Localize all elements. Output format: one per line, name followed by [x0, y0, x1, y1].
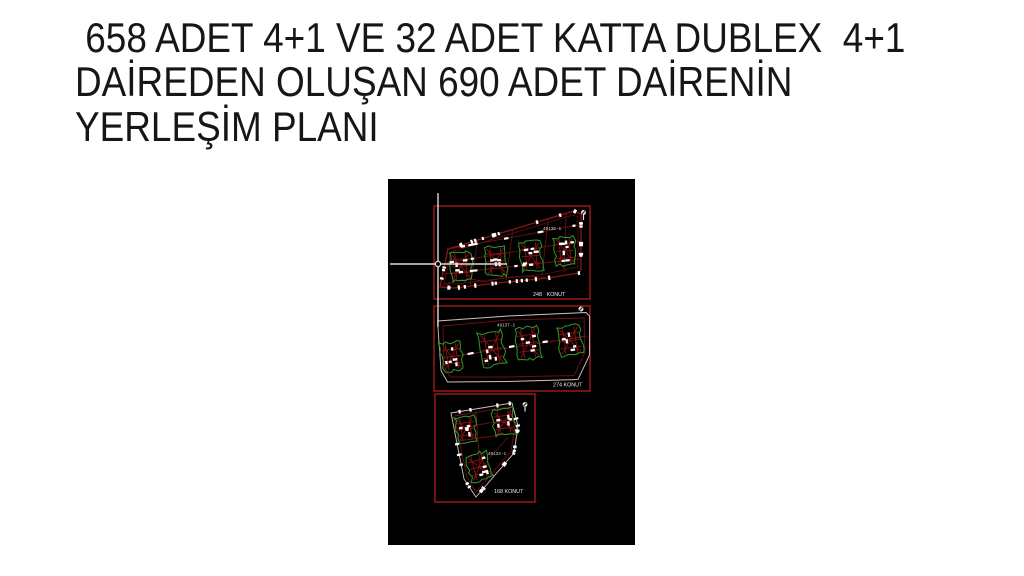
svg-text:274 KONUT: 274 KONUT — [553, 383, 583, 389]
svg-text:248 KONUT: 248 KONUT — [533, 292, 566, 298]
svg-text:49138 -1: 49138 -1 — [543, 226, 562, 231]
svg-text:49134 -1: 49134 -1 — [488, 451, 507, 456]
svg-text:49137 -1: 49137 -1 — [497, 323, 516, 328]
svg-text:168 KONUT: 168 KONUT — [494, 489, 524, 495]
